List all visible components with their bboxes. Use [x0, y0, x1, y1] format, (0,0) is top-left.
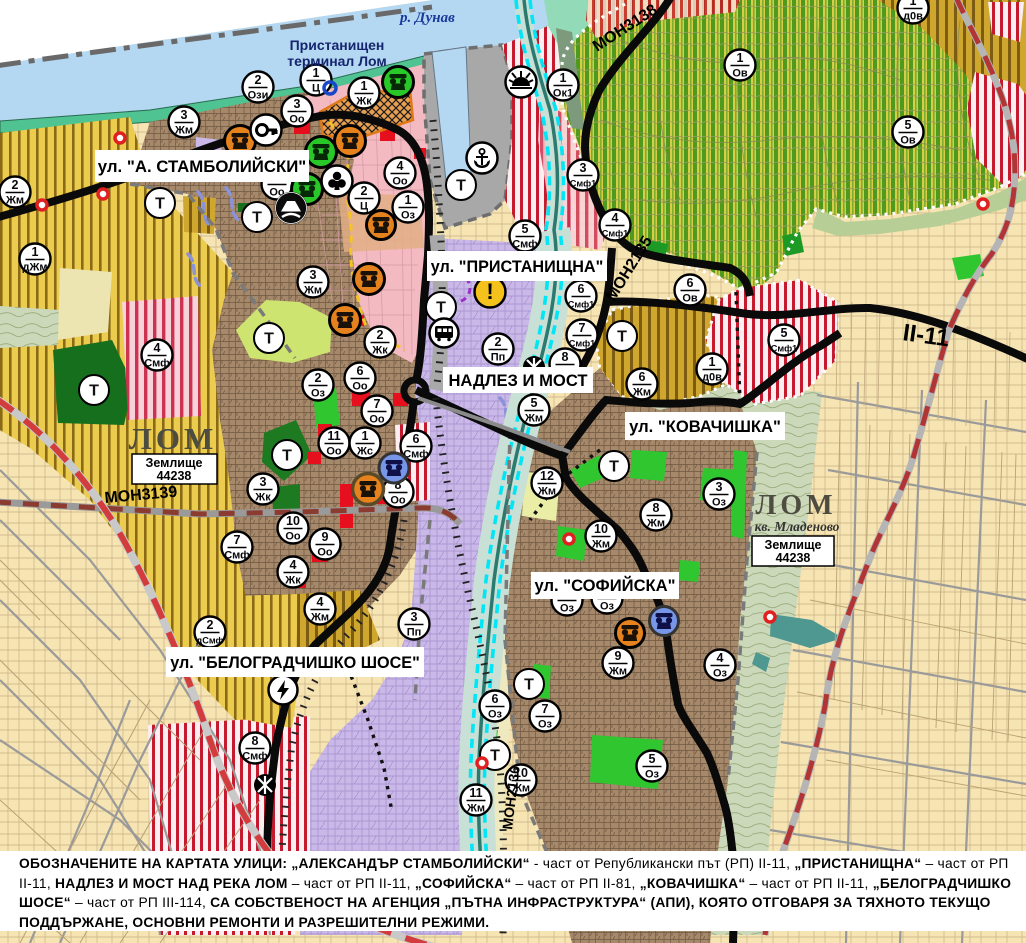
- svg-text:4: 4: [154, 341, 161, 355]
- svg-text:Жс: Жс: [356, 446, 373, 458]
- svg-text:2: 2: [255, 73, 262, 87]
- svg-text:кв. Младеново: кв. Младеново: [755, 519, 840, 534]
- svg-text:1: 1: [910, 0, 917, 8]
- svg-text:1: 1: [405, 193, 412, 207]
- svg-text:Оо: Оо: [289, 114, 305, 126]
- svg-text:11: 11: [327, 429, 340, 443]
- svg-text:Жм: Жм: [591, 539, 610, 551]
- svg-text:Оз: Оз: [712, 497, 727, 509]
- svg-text:2: 2: [361, 184, 368, 198]
- svg-text:4: 4: [317, 595, 324, 609]
- svg-text:Пп: Пп: [407, 627, 422, 639]
- svg-text:Ов: Ов: [900, 135, 916, 147]
- svg-text:Ов: Ов: [682, 293, 698, 305]
- svg-text:Пристанищен: Пристанищен: [290, 37, 385, 53]
- svg-text:6: 6: [687, 276, 694, 290]
- svg-text:1: 1: [361, 79, 368, 93]
- svg-text:Смф1: Смф1: [771, 344, 797, 354]
- svg-text:44238: 44238: [157, 469, 192, 483]
- svg-text:Оз: Оз: [538, 719, 553, 731]
- svg-text:Жк: Жк: [355, 96, 372, 108]
- svg-text:1: 1: [709, 355, 716, 369]
- svg-text:T: T: [617, 329, 627, 346]
- svg-text:1: 1: [32, 245, 39, 259]
- svg-text:4: 4: [717, 651, 724, 665]
- svg-text:7: 7: [542, 702, 549, 716]
- svg-text:T: T: [155, 196, 165, 213]
- svg-text:Смф1: Смф1: [569, 339, 595, 349]
- svg-text:Оз: Оз: [600, 601, 615, 613]
- svg-text:дЖм: дЖм: [22, 262, 47, 274]
- svg-text:2: 2: [377, 328, 384, 342]
- svg-text:Жк: Жк: [371, 345, 388, 357]
- svg-text:Оо: Оо: [352, 381, 368, 393]
- svg-text:д0в: д0в: [903, 11, 923, 23]
- svg-text:Жк: Жк: [284, 575, 301, 587]
- svg-text:Ози: Ози: [248, 90, 269, 102]
- svg-text:Смф: Смф: [512, 239, 538, 251]
- svg-text:Оз: Оз: [645, 769, 660, 781]
- svg-text:3: 3: [310, 268, 317, 282]
- svg-text:д0в: д0в: [702, 372, 722, 384]
- svg-text:ул. "СОФИЙСКА": ул. "СОФИЙСКА": [534, 576, 675, 595]
- svg-text:3: 3: [181, 108, 188, 122]
- svg-text:Оз: Оз: [488, 709, 503, 721]
- svg-text:5: 5: [531, 396, 538, 410]
- svg-text:6: 6: [413, 432, 420, 446]
- svg-text:терминал Лом: терминал Лом: [287, 53, 387, 69]
- svg-text:Оз: Оз: [311, 388, 326, 400]
- svg-text:Смф1: Смф1: [570, 179, 596, 189]
- svg-text:Жк: Жк: [254, 492, 271, 504]
- svg-text:Ц: Ц: [360, 201, 368, 213]
- svg-text:Жм: Жм: [608, 666, 627, 678]
- svg-text:T: T: [252, 210, 262, 227]
- svg-text:2: 2: [207, 618, 214, 632]
- svg-text:Землище: Землище: [765, 538, 822, 552]
- svg-text:Жм: Жм: [632, 387, 651, 399]
- svg-text:3: 3: [294, 97, 301, 111]
- svg-text:6: 6: [357, 364, 364, 378]
- svg-text:T: T: [490, 748, 500, 765]
- svg-text:1: 1: [362, 429, 369, 443]
- svg-text:2: 2: [12, 178, 19, 192]
- svg-text:Оо: Оо: [369, 414, 385, 426]
- svg-text:Жм: Жм: [524, 413, 543, 425]
- svg-text:44238: 44238: [776, 551, 811, 565]
- svg-text:11: 11: [469, 786, 482, 800]
- svg-text:Пп: Пп: [491, 352, 506, 364]
- svg-text:Оо: Оо: [285, 531, 301, 543]
- svg-text:5: 5: [905, 118, 912, 132]
- svg-text:T: T: [89, 383, 99, 400]
- svg-text:Жм: Жм: [646, 518, 665, 530]
- svg-text:Оо: Оо: [317, 547, 333, 559]
- svg-text:4: 4: [397, 159, 404, 173]
- svg-text:3: 3: [580, 161, 587, 175]
- svg-text:!: !: [486, 279, 493, 304]
- svg-text:T: T: [524, 677, 534, 694]
- svg-text:ул. "А. СТАМБОЛИЙСКИ": ул. "А. СТАМБОЛИЙСКИ": [98, 157, 306, 176]
- svg-text:ул. "КОВАЧИШКА": ул. "КОВАЧИШКА": [629, 417, 781, 436]
- svg-text:7: 7: [374, 397, 381, 411]
- svg-text:Ок1: Ок1: [553, 88, 573, 100]
- svg-text:10: 10: [286, 514, 300, 528]
- svg-text:1: 1: [560, 71, 567, 85]
- svg-text:Смф1: Смф1: [568, 300, 594, 310]
- svg-text:6: 6: [639, 370, 646, 384]
- svg-text:Жм: Жм: [537, 486, 556, 498]
- svg-text:4: 4: [612, 211, 619, 225]
- svg-text:Оо: Оо: [390, 495, 406, 507]
- svg-text:10: 10: [594, 522, 608, 536]
- svg-text:Оо: Оо: [392, 176, 408, 188]
- svg-text:ул. "ПРИСТАНИЩНА": ул. "ПРИСТАНИЩНА": [431, 258, 604, 276]
- svg-text:T: T: [282, 448, 292, 465]
- svg-text:T: T: [436, 300, 446, 317]
- svg-text:3: 3: [411, 610, 418, 624]
- svg-text:7: 7: [579, 321, 586, 335]
- svg-text:T: T: [456, 178, 466, 195]
- svg-text:НАДЛЕЗ И МОСТ: НАДЛЕЗ И МОСТ: [448, 371, 587, 390]
- svg-text:Жм: Жм: [466, 803, 485, 815]
- svg-text:5: 5: [781, 326, 788, 340]
- svg-text:ЛОМ: ЛОМ: [129, 421, 217, 456]
- svg-text:Оз: Оз: [713, 668, 728, 680]
- svg-text:8: 8: [252, 734, 259, 748]
- svg-text:Смф: Смф: [242, 751, 268, 763]
- svg-text:T: T: [264, 331, 274, 348]
- svg-text:Оо: Оо: [326, 446, 342, 458]
- svg-text:T: T: [609, 459, 619, 476]
- svg-text:5: 5: [649, 752, 656, 766]
- svg-text:Смф: Смф: [224, 550, 250, 562]
- svg-text:5: 5: [522, 222, 529, 236]
- svg-text:Смф: Смф: [144, 358, 170, 370]
- svg-text:6: 6: [578, 282, 585, 296]
- svg-text:9: 9: [615, 649, 622, 663]
- svg-text:4: 4: [290, 558, 297, 572]
- svg-text:9: 9: [322, 530, 329, 544]
- svg-text:2: 2: [495, 335, 502, 349]
- svg-text:12: 12: [540, 469, 554, 483]
- svg-text:6: 6: [492, 692, 499, 706]
- svg-text:ЛОМ: ЛОМ: [755, 490, 836, 521]
- svg-text:Ов: Ов: [732, 68, 748, 80]
- svg-text:2: 2: [315, 371, 322, 385]
- svg-text:дСмф: дСмф: [196, 636, 223, 646]
- svg-text:Оз: Оз: [560, 603, 575, 615]
- svg-text:8: 8: [562, 350, 569, 364]
- svg-text:Землище: Землище: [146, 456, 203, 470]
- svg-text:3: 3: [716, 480, 723, 494]
- svg-text:3: 3: [260, 475, 267, 489]
- svg-text:Жм: Жм: [303, 285, 322, 297]
- svg-text:7: 7: [234, 533, 241, 547]
- svg-text:8: 8: [653, 501, 660, 515]
- svg-text:Жм: Жм: [310, 612, 329, 624]
- svg-text:Жм: Жм: [174, 125, 193, 137]
- svg-text:Ц: Ц: [312, 83, 320, 95]
- svg-text:Смф1: Смф1: [602, 229, 628, 239]
- svg-text:р. Дунав: р. Дунав: [398, 10, 455, 26]
- svg-text:Жм: Жм: [5, 195, 24, 207]
- svg-text:ул. "БЕЛОГРАДЧИШКО ШОСЕ": ул. "БЕЛОГРАДЧИШКО ШОСЕ": [170, 654, 420, 672]
- svg-text:Оз: Оз: [401, 210, 416, 222]
- svg-text:1: 1: [737, 51, 744, 65]
